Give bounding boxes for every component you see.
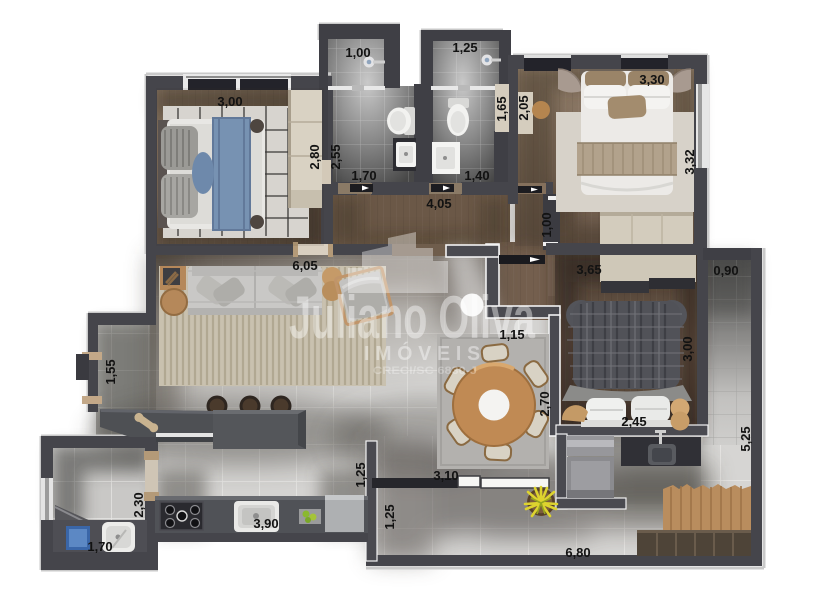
svg-text:2,45: 2,45 <box>621 414 646 429</box>
svg-text:1,70: 1,70 <box>87 539 112 554</box>
svg-text:2,80: 2,80 <box>307 144 322 169</box>
svg-text:3,90: 3,90 <box>253 516 278 531</box>
svg-text:1,40: 1,40 <box>464 168 489 183</box>
svg-text:2,55: 2,55 <box>328 144 343 169</box>
svg-text:1,55: 1,55 <box>103 359 118 384</box>
svg-text:1,70: 1,70 <box>351 168 376 183</box>
svg-text:1,25: 1,25 <box>382 504 397 529</box>
svg-text:1,00: 1,00 <box>345 45 370 60</box>
svg-text:2,70: 2,70 <box>537 391 552 416</box>
svg-text:IMÓVEIS: IMÓVEIS <box>364 341 486 365</box>
svg-text:1,25: 1,25 <box>353 462 368 487</box>
svg-text:1,00: 1,00 <box>539 212 554 237</box>
svg-text:3,00: 3,00 <box>680 336 695 361</box>
svg-text:2,05: 2,05 <box>516 95 531 120</box>
svg-text:5,25: 5,25 <box>738 426 753 451</box>
svg-text:2,30: 2,30 <box>131 492 146 517</box>
svg-text:3,00: 3,00 <box>217 94 242 109</box>
svg-text:3,32: 3,32 <box>682 149 697 174</box>
svg-text:6,05: 6,05 <box>292 258 317 273</box>
svg-text:3,10: 3,10 <box>433 468 458 483</box>
svg-text:CRECI/SC 6830-J: CRECI/SC 6830-J <box>373 365 477 377</box>
svg-text:1,15: 1,15 <box>499 327 524 342</box>
svg-text:4,05: 4,05 <box>426 196 451 211</box>
svg-text:1,25: 1,25 <box>452 40 477 55</box>
svg-text:3,65: 3,65 <box>576 262 601 277</box>
svg-text:0,90: 0,90 <box>713 263 738 278</box>
svg-text:6,80: 6,80 <box>565 545 590 560</box>
svg-text:3,30: 3,30 <box>639 72 664 87</box>
svg-text:1,65: 1,65 <box>494 96 509 121</box>
